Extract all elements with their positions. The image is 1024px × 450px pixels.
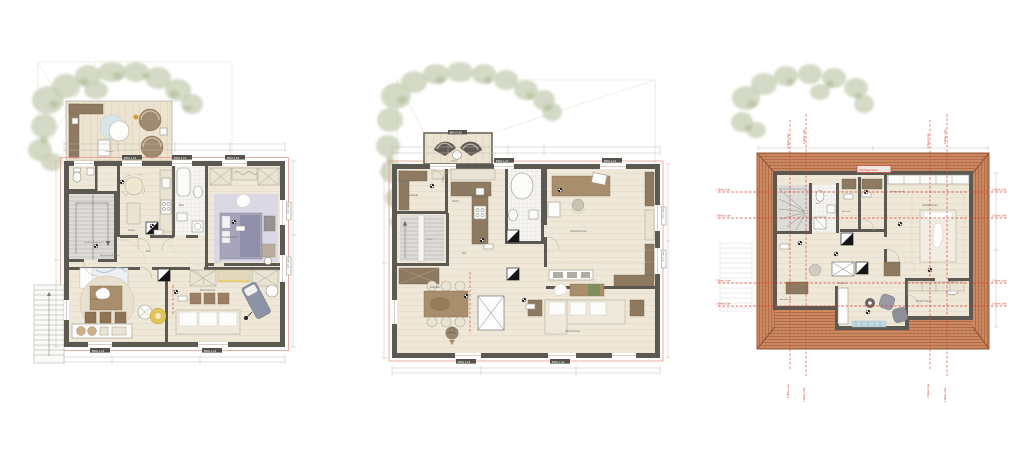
window-label-chip: BRH 1,24	[662, 250, 666, 268]
elevation-marker	[232, 220, 236, 224]
sink	[162, 178, 170, 188]
window-label-chip: BRH 1,24	[456, 359, 476, 364]
meter-line-label: 1 Meter Linie	[992, 302, 1007, 305]
lounge-chair	[141, 136, 163, 158]
window-label-chip: BRH 1,04	[225, 155, 245, 160]
svg-text:BRH 1,13: BRH 1,13	[604, 159, 617, 163]
room-label: Kinderzimmer	[90, 297, 106, 301]
elevation-marker	[94, 244, 98, 248]
window-label-chip: BRH 1,24	[202, 348, 222, 353]
stair-note: 14 Stg.	[426, 238, 433, 241]
bench	[262, 244, 275, 257]
elevation-marker	[522, 298, 526, 302]
side-table	[630, 300, 644, 316]
room-label: Schlafzimmer	[222, 235, 238, 239]
elevation-marker	[866, 310, 870, 314]
void-window	[478, 296, 504, 330]
window-label-chip: BRH 1,24	[287, 202, 291, 220]
svg-text:BRH 1,24: BRH 1,24	[287, 204, 289, 214]
upper-floor-plan: BRH 0,90 Balkon BRH 1,24 BRH 1,13 BRH 1,…	[376, 62, 671, 375]
dresser	[264, 216, 275, 231]
balcony-table	[453, 151, 462, 160]
lounge-chair	[139, 109, 161, 131]
room-label: Bad	[179, 203, 184, 207]
side-table-round	[266, 285, 278, 297]
room-label: Ankleide	[408, 193, 419, 197]
window-label-chip: BRH 0,90	[448, 130, 467, 135]
floor-opening-symbol	[856, 262, 868, 274]
bathtub	[177, 168, 190, 196]
terrace: Terrasse	[66, 101, 172, 161]
floor-opening-symbol	[158, 269, 170, 281]
elevation-marker	[558, 188, 562, 192]
svg-text:BRH 1,24: BRH 1,24	[458, 360, 471, 364]
trees	[731, 64, 874, 138]
elevation-marker	[120, 180, 124, 184]
room-label: Eingang Wohnung 1	[100, 255, 121, 257]
kitchen-island	[127, 203, 140, 224]
meter-line-label: 1 Meter Linie	[716, 188, 731, 191]
floor-opening-symbol	[841, 233, 853, 245]
room-label: Eingang Wohnung 2	[84, 242, 105, 244]
elevation-marker	[798, 241, 802, 245]
meter-line-label: 2 Meter Linie	[944, 387, 947, 402]
svg-text:Dachgeschoss: Dachgeschoss	[860, 168, 879, 172]
sink	[177, 213, 187, 221]
kitchen-table	[125, 177, 143, 195]
room-label: Wohnzimmer	[565, 329, 580, 333]
meter-line-label: 1 Meter Linie	[927, 383, 930, 398]
sofa	[176, 310, 240, 334]
sideboard	[218, 270, 250, 282]
window-label-chip: BRH 1,24	[90, 348, 110, 353]
pouf	[809, 264, 821, 276]
attic-floor-plan: Bad Ankleide Dachgeschoss Kleiderschrank…	[716, 64, 1008, 402]
desk-chair	[572, 199, 584, 211]
stool	[115, 312, 126, 323]
attic-badge: Dachgeschoss	[857, 166, 891, 173]
meter-line-label: 1 Meter Linie	[992, 188, 1007, 191]
floor-opening-symbol	[507, 268, 519, 280]
meter-line-label: 2 Meter Linie	[716, 214, 731, 217]
wardrobe	[614, 275, 654, 286]
exterior-stair	[34, 285, 64, 363]
meter-line-label: 2 Meter Linie	[944, 129, 947, 144]
room-label: Arbeitszimmer	[570, 229, 587, 233]
svg-text:BRH 0,90: BRH 0,90	[450, 131, 463, 135]
terrace-table	[109, 121, 129, 141]
stool	[85, 312, 96, 323]
svg-text:BRH 1,24: BRH 1,24	[552, 360, 565, 364]
room-label: Küche	[452, 199, 460, 203]
elevation-marker	[150, 224, 154, 228]
svg-text:BRH 1,24: BRH 1,24	[124, 156, 137, 160]
meter-line-label: 2 Meter Linie	[716, 279, 731, 282]
side-table	[204, 293, 215, 304]
svg-text:BRH 1,24: BRH 1,24	[287, 259, 289, 269]
void-window	[832, 262, 854, 276]
stool	[100, 312, 111, 323]
floor-plan-sheet: Terrasse BRH 1,24 BRH	[0, 0, 1024, 450]
room-label: Küche	[128, 228, 136, 232]
cabinet	[884, 262, 900, 276]
dresser	[786, 282, 808, 294]
sink	[827, 205, 835, 213]
window-label-chip: BRH 1,24	[550, 359, 570, 364]
svg-text:BRH 1,24: BRH 1,24	[662, 209, 664, 219]
side-table	[190, 293, 201, 304]
svg-text:BRH 1,24: BRH 1,24	[662, 252, 664, 262]
exterior-stair-faint	[720, 243, 752, 311]
room-label: Ankleide	[842, 210, 851, 213]
room-label: Balkon	[451, 161, 458, 163]
room-label: Terrasse	[105, 150, 114, 153]
elevation-marker	[430, 184, 434, 188]
wardrobe	[888, 175, 969, 184]
svg-text:BRH 1,24: BRH 1,24	[92, 349, 105, 353]
stove	[161, 200, 171, 214]
svg-text:BRH 1,24: BRH 1,24	[496, 159, 509, 163]
meter-line-label: 2 Meter Linie	[992, 214, 1007, 217]
meter-line-label: 2 Meter Linie	[803, 387, 806, 402]
bathtub	[511, 173, 533, 199]
room-label: Flur	[462, 251, 467, 255]
window-label-chip: BRH 1,24	[287, 257, 291, 275]
stove	[474, 206, 486, 219]
sink	[476, 188, 484, 195]
meter-line-label: 2 Meter Linie	[992, 279, 1007, 282]
meter-line-label: 1 Meter Linie	[927, 133, 930, 148]
window-seat	[852, 321, 886, 327]
elevation-marker	[898, 222, 902, 226]
meter-line-label: 1 Meter Linie	[716, 302, 731, 305]
room-label: Wohnzimmer	[200, 288, 215, 292]
elevation-marker	[174, 290, 178, 294]
floor-opening-symbol	[507, 230, 519, 242]
room-label: Kleiderschrank	[890, 190, 905, 193]
elevation-marker	[464, 294, 468, 298]
window-label-chip: BRH 1,13	[172, 155, 192, 160]
plans-drawing: Terrasse BRH 1,24 BRH	[0, 0, 1024, 450]
meter-line-label: 1 Meter Linie	[787, 133, 790, 148]
room-label: Essplatz	[430, 285, 441, 289]
washer	[192, 221, 203, 232]
bowl	[134, 115, 139, 120]
window-label-chip: BRH 1,13	[602, 158, 622, 163]
window-label-chip: BRH 1,24	[122, 155, 142, 160]
elevation-marker	[834, 252, 838, 256]
toilet	[194, 186, 203, 198]
toilet	[509, 209, 518, 221]
svg-text:BRH 1,13: BRH 1,13	[174, 156, 187, 160]
window-label-chip: BRH 1,24	[494, 158, 514, 163]
svg-text:BRH 1,04: BRH 1,04	[227, 156, 240, 160]
ground-floor-plan: Terrasse BRH 1,24 BRH	[28, 62, 296, 364]
meter-line-label: 2 Meter Linie	[803, 129, 806, 144]
side-table	[218, 293, 229, 304]
window-label-chip: BRH 1,24	[662, 207, 666, 225]
dimension-line	[758, 146, 988, 151]
meter-line-label: 1 Meter Linie	[787, 383, 790, 398]
elevation-marker	[480, 238, 484, 242]
sink	[529, 210, 538, 219]
svg-text:BRH 1,24: BRH 1,24	[204, 349, 217, 353]
